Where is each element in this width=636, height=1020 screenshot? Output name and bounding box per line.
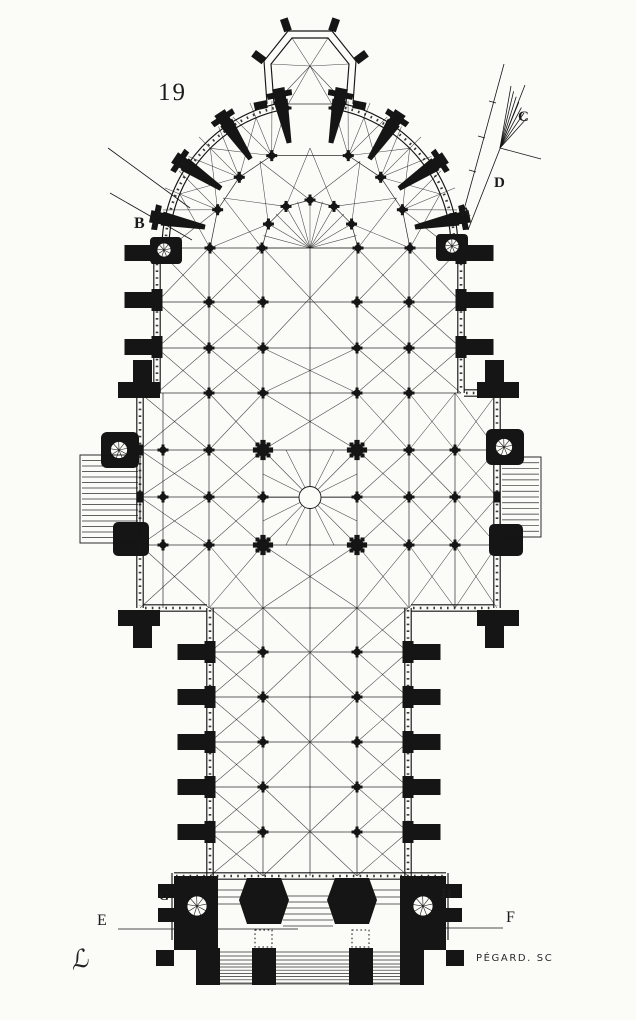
ref-label-b: B — [134, 216, 145, 232]
figure-number: 19 — [158, 80, 187, 105]
ref-label-c: C — [518, 110, 529, 125]
ref-label-f: F — [506, 910, 515, 926]
ref-label-e: E — [97, 913, 107, 929]
engraver-credit: PÉGARD. SC — [476, 954, 553, 964]
ref-label-h: H — [441, 888, 452, 902]
ref-label-a: A — [461, 205, 470, 218]
cathedral-floor-plan — [0, 0, 636, 1020]
ref-label-d: D — [494, 176, 505, 191]
ref-label-g: G — [159, 889, 169, 902]
engraving-page: 19 A B C D E F G H PÉGARD. SC ℒ — [0, 0, 636, 1020]
